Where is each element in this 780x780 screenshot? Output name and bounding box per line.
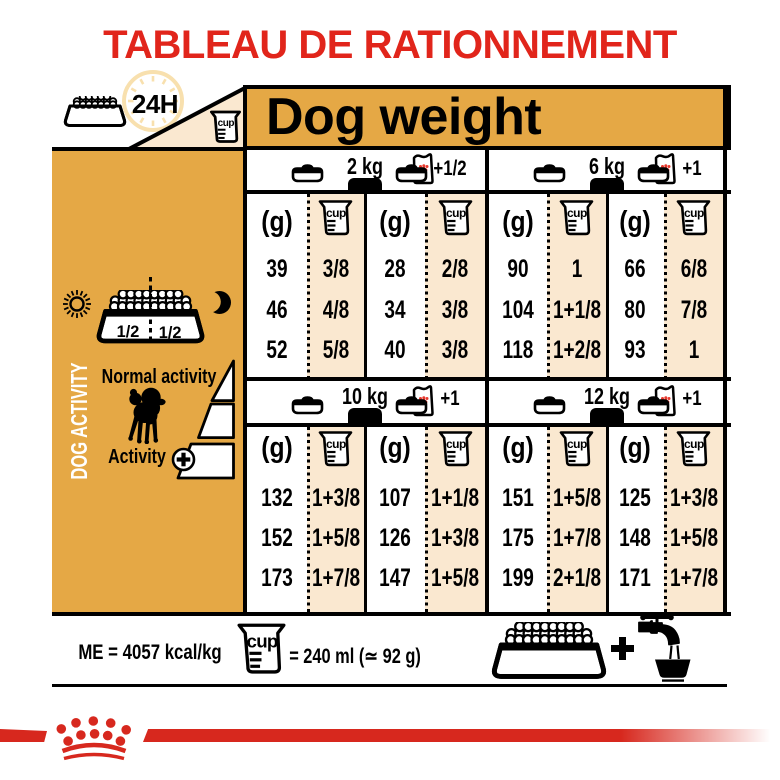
- svg-text:cup: cup: [218, 118, 235, 129]
- svg-text:1/2: 1/2: [117, 323, 140, 341]
- svg-text:cup: cup: [445, 437, 465, 451]
- svg-text:cup: cup: [567, 437, 587, 451]
- svg-text:1/2: 1/2: [159, 324, 182, 342]
- svg-text:cup: cup: [684, 206, 704, 220]
- svg-text:cup: cup: [326, 437, 346, 451]
- svg-text:cup: cup: [445, 206, 465, 220]
- svg-text:cup: cup: [567, 206, 587, 220]
- svg-text:cup: cup: [247, 631, 278, 652]
- svg-text:cup: cup: [684, 437, 704, 451]
- svg-text:cup: cup: [326, 206, 346, 220]
